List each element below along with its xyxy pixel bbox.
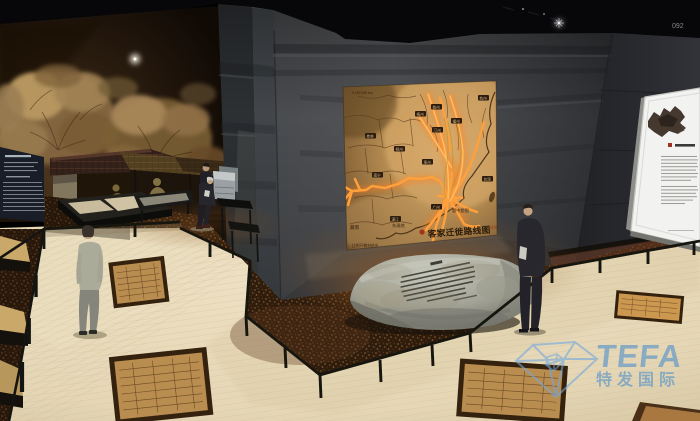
svg-text:题中题图: 题中题图 bbox=[452, 207, 469, 214]
svg-text:汀州: 汀州 bbox=[434, 128, 442, 133]
svg-text:台湾: 台湾 bbox=[484, 177, 492, 182]
svg-text:藏南: 藏南 bbox=[350, 224, 360, 231]
svg-text:湛江: 湛江 bbox=[392, 217, 400, 222]
svg-text:梅州: 梅州 bbox=[417, 112, 425, 117]
svg-text:南宁: 南宁 bbox=[374, 173, 382, 178]
svg-text:福州: 福州 bbox=[453, 119, 461, 124]
svg-text:广州: 广州 bbox=[433, 205, 441, 210]
svg-text:0 100 200 km: 0 100 200 km bbox=[352, 91, 373, 95]
svg-text:杭州: 杭州 bbox=[480, 96, 488, 101]
svg-text:桂林: 桂林 bbox=[367, 134, 375, 139]
svg-text:特发国际: 特发国际 bbox=[596, 370, 680, 389]
svg-text:惠州: 惠州 bbox=[424, 160, 432, 165]
svg-text:柳州: 柳州 bbox=[396, 147, 404, 152]
svg-text:092: 092 bbox=[672, 23, 684, 30]
svg-text:赣州: 赣州 bbox=[433, 105, 441, 110]
svg-text:TEFA: TEFA bbox=[595, 338, 685, 374]
svg-text:东观地: 东观地 bbox=[392, 222, 405, 229]
